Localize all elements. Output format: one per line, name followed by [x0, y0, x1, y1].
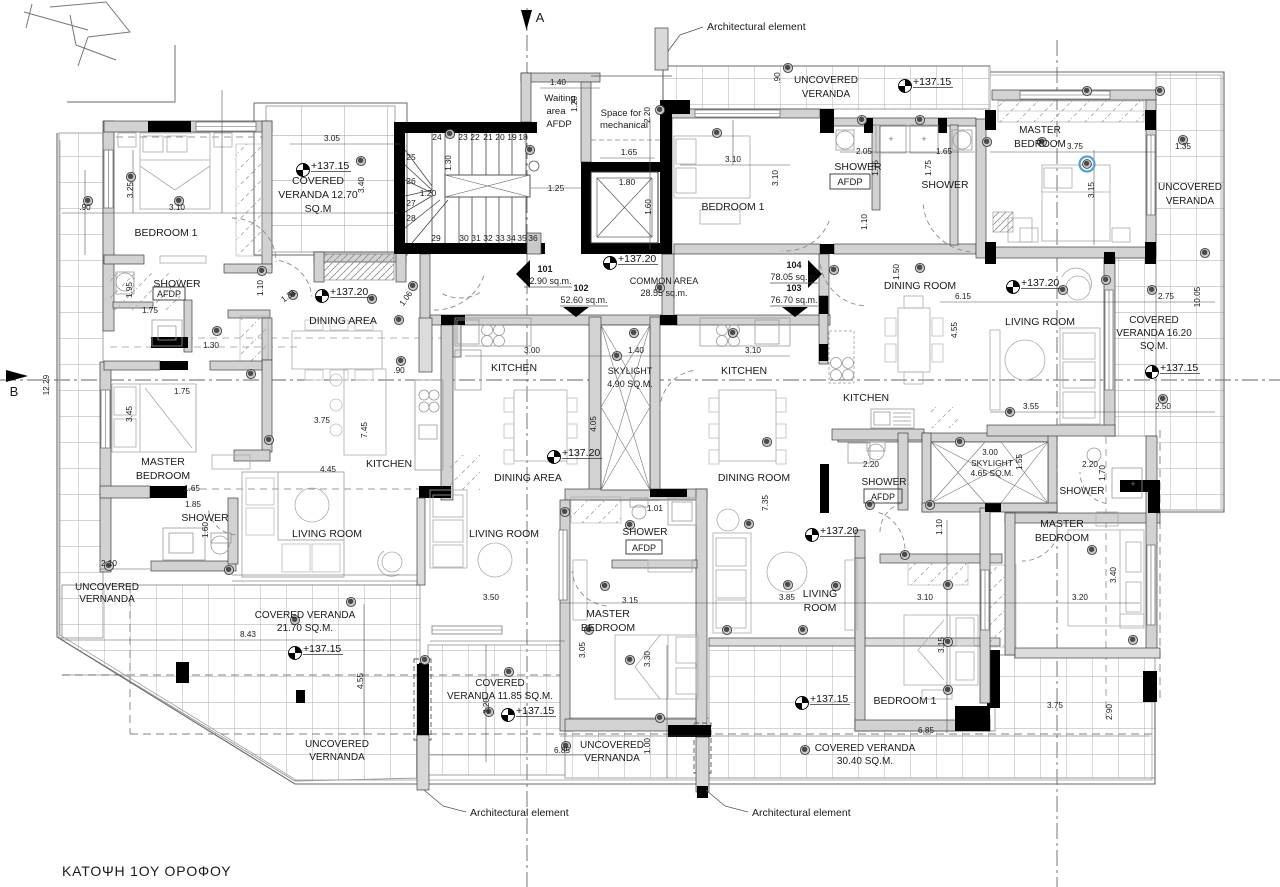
svg-text:12.29: 12.29 — [42, 374, 51, 395]
svg-text:1.40: 1.40 — [628, 346, 644, 355]
svg-text:1.10: 1.10 — [860, 214, 869, 230]
svg-text:4.55: 4.55 — [950, 322, 959, 338]
svg-text:Architectural element: Architectural element — [752, 807, 851, 819]
svg-text:MASTER: MASTER — [1019, 125, 1061, 136]
svg-text:UNCOVERED: UNCOVERED — [580, 740, 644, 751]
svg-text:2.20: 2.20 — [643, 107, 652, 123]
svg-text:1.75: 1.75 — [142, 306, 158, 315]
svg-text:3.45: 3.45 — [125, 406, 134, 422]
svg-text:32: 32 — [483, 233, 493, 243]
svg-text:.90: .90 — [79, 203, 91, 212]
svg-text:1.75: 1.75 — [174, 387, 190, 396]
svg-text:1.30: 1.30 — [203, 341, 219, 350]
svg-text:2.90: 2.90 — [1105, 704, 1114, 720]
svg-text:36: 36 — [528, 233, 538, 243]
svg-text:3.30: 3.30 — [643, 651, 652, 667]
svg-text:3.00: 3.00 — [524, 346, 540, 355]
svg-text:VERNANDA: VERNANDA — [584, 753, 640, 764]
svg-text:SHOWER: SHOWER — [1060, 486, 1105, 497]
svg-text:1.65: 1.65 — [936, 147, 952, 156]
svg-text:4.45: 4.45 — [320, 465, 336, 474]
svg-text:1.60: 1.60 — [644, 199, 653, 215]
svg-text:76.70 sq.m.: 76.70 sq.m. — [770, 295, 817, 305]
svg-text:.90: .90 — [393, 366, 405, 375]
svg-text:Architectural element: Architectural element — [707, 21, 806, 33]
svg-text:3.50: 3.50 — [483, 593, 499, 602]
svg-text:KITCHEN: KITCHEN — [491, 362, 537, 374]
svg-text:DINING AREA: DINING AREA — [309, 315, 377, 327]
svg-text:1.40: 1.40 — [550, 78, 566, 87]
svg-text:28.55 sq.m.: 28.55 sq.m. — [640, 288, 687, 298]
svg-text:2.10: 2.10 — [101, 559, 117, 568]
svg-text:UNCOVERED: UNCOVERED — [305, 739, 369, 750]
svg-text:3.15: 3.15 — [937, 637, 946, 653]
svg-text:78.05 sq.m.: 78.05 sq.m. — [770, 272, 817, 282]
svg-text:20: 20 — [495, 132, 505, 142]
svg-text:VERANDA 16.20: VERANDA 16.20 — [1116, 328, 1192, 339]
svg-text:+137.15: +137.15 — [303, 643, 341, 655]
svg-text:1.10: 1.10 — [935, 519, 944, 535]
svg-text:AFDP: AFDP — [632, 543, 656, 553]
svg-text:UNCOVERED: UNCOVERED — [794, 75, 858, 86]
svg-text:3.05: 3.05 — [578, 642, 587, 658]
svg-text:LIVING ROOM: LIVING ROOM — [292, 528, 362, 540]
svg-text:3.10: 3.10 — [169, 203, 185, 212]
svg-text:KITCHEN: KITCHEN — [843, 392, 889, 404]
svg-text:Space for: Space for — [601, 108, 642, 119]
svg-text:+137.20: +137.20 — [618, 253, 656, 265]
svg-text:VERANDA: VERANDA — [802, 89, 851, 100]
svg-text:SQ.M.: SQ.M. — [1140, 341, 1168, 352]
svg-text:33: 33 — [495, 233, 505, 243]
svg-text:6.85: 6.85 — [918, 726, 934, 735]
svg-text:MASTER: MASTER — [1040, 518, 1084, 530]
svg-text:7.35: 7.35 — [761, 495, 770, 511]
svg-text:2.75: 2.75 — [1158, 292, 1174, 301]
svg-text:3.10: 3.10 — [917, 593, 933, 602]
svg-text:1.80: 1.80 — [619, 177, 636, 187]
svg-text:4.05: 4.05 — [589, 416, 598, 432]
svg-text:2.20: 2.20 — [863, 460, 879, 469]
svg-text:3.75: 3.75 — [1047, 701, 1063, 710]
svg-text:ROOM: ROOM — [804, 602, 837, 614]
svg-text:1.70: 1.70 — [1098, 465, 1107, 481]
svg-text:1.30: 1.30 — [444, 155, 453, 171]
svg-text:29: 29 — [431, 233, 441, 243]
svg-text:LIVING ROOM: LIVING ROOM — [469, 528, 539, 540]
svg-text:1.60: 1.60 — [201, 522, 210, 538]
svg-text:COVERED: COVERED — [475, 678, 524, 689]
svg-text:3.20: 3.20 — [1072, 593, 1088, 602]
svg-text:52.60 sq.m.: 52.60 sq.m. — [560, 295, 607, 305]
svg-text:3.00: 3.00 — [982, 448, 998, 457]
svg-text:3.05: 3.05 — [324, 134, 340, 143]
svg-text:COMMON AREA: COMMON AREA — [630, 276, 699, 286]
svg-text:2.20: 2.20 — [1082, 460, 1098, 469]
svg-text:KITCHEN: KITCHEN — [366, 458, 412, 470]
svg-text:3.40: 3.40 — [357, 177, 366, 193]
svg-text:DINING ROOM: DINING ROOM — [718, 472, 790, 484]
svg-text:SHOWER: SHOWER — [921, 179, 969, 191]
svg-text:6.15: 6.15 — [955, 292, 971, 301]
svg-text:BEDROOM 1: BEDROOM 1 — [701, 201, 764, 213]
svg-text:8.43: 8.43 — [240, 630, 256, 639]
svg-text:+137.20: +137.20 — [330, 286, 368, 298]
svg-text:KITCHEN: KITCHEN — [721, 365, 767, 377]
svg-text:Architectural element: Architectural element — [470, 807, 569, 819]
svg-text:28: 28 — [406, 213, 416, 223]
svg-text:7.45: 7.45 — [360, 422, 369, 438]
svg-text:1.35: 1.35 — [1175, 142, 1191, 151]
svg-text:27: 27 — [406, 198, 416, 208]
svg-text:22: 22 — [470, 132, 480, 142]
svg-text:A: A — [536, 10, 545, 25]
svg-text:SQ.M: SQ.M — [305, 203, 332, 215]
svg-text:24: 24 — [432, 132, 442, 142]
svg-text:3.25: 3.25 — [126, 182, 135, 198]
svg-text:VERANDA 12.70: VERANDA 12.70 — [278, 189, 358, 201]
svg-text:BEDROOM 1: BEDROOM 1 — [134, 227, 197, 239]
svg-text:3.55: 3.55 — [1023, 402, 1039, 411]
svg-text:ΚΑΤΟΨΗ 1ΟΥ ΟΡΟΦΟΥ: ΚΑΤΟΨΗ 1ΟΥ ΟΡΟΦΟΥ — [62, 863, 231, 879]
svg-text:1.50: 1.50 — [892, 264, 901, 280]
svg-text:+137.15: +137.15 — [311, 160, 349, 172]
svg-text:4.65 SQ.M.: 4.65 SQ.M. — [971, 468, 1014, 478]
svg-text:31: 31 — [471, 233, 481, 243]
svg-text:+137.15: +137.15 — [516, 705, 554, 717]
svg-text:BEDROOM: BEDROOM — [136, 470, 190, 482]
svg-text:BEDROOM: BEDROOM — [1035, 532, 1089, 544]
svg-text:1.65: 1.65 — [621, 147, 638, 157]
svg-text:2.05: 2.05 — [856, 147, 872, 156]
svg-text:35: 35 — [517, 233, 527, 243]
svg-text:+: + — [1130, 479, 1135, 489]
svg-text:1.00: 1.00 — [643, 738, 652, 754]
svg-text:26: 26 — [406, 176, 416, 186]
svg-text:AFDP: AFDP — [157, 289, 181, 299]
svg-text:COVERED VERANDA: COVERED VERANDA — [255, 610, 356, 621]
svg-text:1.65: 1.65 — [184, 484, 200, 493]
svg-text:VERANDA: VERANDA — [1166, 196, 1215, 207]
svg-text:30.40 SQ.M.: 30.40 SQ.M. — [837, 756, 893, 767]
svg-text:1.20: 1.20 — [570, 96, 579, 112]
svg-text:6.85: 6.85 — [554, 746, 570, 755]
svg-text:area: area — [546, 106, 566, 117]
svg-text:+: + — [921, 134, 926, 144]
svg-text:1.85: 1.85 — [185, 500, 201, 509]
svg-text:4.55: 4.55 — [356, 673, 365, 689]
svg-text:+: + — [888, 134, 893, 144]
svg-text:MASTER: MASTER — [586, 608, 630, 620]
svg-text:3.40: 3.40 — [1109, 567, 1118, 583]
svg-text:1.01: 1.01 — [647, 504, 663, 513]
svg-text:SKYLIGHT: SKYLIGHT — [971, 458, 1013, 468]
svg-text:1.10: 1.10 — [256, 280, 265, 296]
svg-text:SHOWER: SHOWER — [623, 527, 668, 538]
svg-text:VERNANDA: VERNANDA — [79, 594, 135, 605]
svg-text:1.75: 1.75 — [871, 160, 880, 176]
svg-text:3.20: 3.20 — [482, 698, 491, 714]
svg-text:1.55: 1.55 — [1015, 454, 1024, 470]
svg-text:COVERED VERANDA: COVERED VERANDA — [815, 743, 916, 754]
svg-text:102: 102 — [573, 283, 588, 293]
svg-text:BEDROOM 1: BEDROOM 1 — [873, 695, 936, 707]
svg-text:BEDROOM: BEDROOM — [1014, 139, 1066, 150]
svg-text:1.75: 1.75 — [924, 160, 933, 176]
svg-text:3.15: 3.15 — [622, 596, 638, 605]
svg-text:UNCOVERED: UNCOVERED — [1158, 182, 1222, 193]
svg-text:3.10: 3.10 — [725, 155, 741, 164]
svg-text:LIVING ROOM: LIVING ROOM — [1005, 316, 1075, 328]
svg-text:+137.20: +137.20 — [562, 447, 600, 459]
svg-text:MASTER: MASTER — [141, 456, 185, 468]
svg-text:mechanical: mechanical — [600, 120, 648, 131]
svg-text:COVERED: COVERED — [1129, 315, 1178, 326]
svg-text:3.75: 3.75 — [314, 416, 330, 425]
svg-text:DINING ROOM: DINING ROOM — [884, 280, 956, 292]
svg-text:3.75: 3.75 — [1067, 142, 1083, 151]
svg-text:21: 21 — [483, 132, 493, 142]
svg-text:SKYLIGHT: SKYLIGHT — [608, 366, 653, 376]
svg-text:1.20: 1.20 — [420, 188, 437, 198]
svg-text:2.50: 2.50 — [1155, 402, 1171, 411]
svg-text:18: 18 — [518, 132, 528, 142]
svg-text:103: 103 — [786, 283, 801, 293]
svg-text:21.70 SQ.M.: 21.70 SQ.M. — [277, 623, 333, 634]
svg-text:30: 30 — [459, 233, 469, 243]
svg-text:19: 19 — [507, 132, 517, 142]
svg-text:BEDROOM: BEDROOM — [581, 622, 635, 634]
svg-text:82.90 sq.m.: 82.90 sq.m. — [524, 276, 571, 286]
svg-text:3.15: 3.15 — [1087, 182, 1096, 198]
svg-text:VERNANDA: VERNANDA — [309, 752, 365, 763]
svg-text:+137.15: +137.15 — [810, 693, 848, 705]
svg-text:+137.20: +137.20 — [820, 525, 858, 537]
svg-text:SHOWER: SHOWER — [862, 477, 907, 488]
svg-text:3.10: 3.10 — [771, 170, 780, 186]
svg-text:23: 23 — [458, 132, 468, 142]
svg-text:4.90 SQ.M.: 4.90 SQ.M. — [607, 379, 653, 389]
svg-text:UNCOVERED: UNCOVERED — [75, 582, 139, 593]
svg-text:101: 101 — [537, 264, 552, 274]
svg-text:AFDP: AFDP — [871, 492, 895, 502]
svg-text:1.95: 1.95 — [125, 282, 134, 298]
svg-text:COVERED: COVERED — [292, 175, 344, 187]
svg-text:3.85: 3.85 — [779, 593, 795, 602]
svg-text:+137.20: +137.20 — [1021, 277, 1059, 289]
svg-text:B: B — [10, 384, 19, 399]
svg-text:LIVING: LIVING — [803, 588, 837, 600]
svg-text:34: 34 — [506, 233, 516, 243]
svg-text:AFDP: AFDP — [837, 177, 862, 188]
svg-text:+137.15: +137.15 — [913, 76, 951, 88]
svg-text:104: 104 — [786, 260, 801, 270]
svg-text:.90: .90 — [773, 72, 782, 84]
svg-text:25: 25 — [406, 152, 416, 162]
svg-text:3.10: 3.10 — [745, 346, 761, 355]
svg-text:10.05: 10.05 — [1193, 286, 1202, 307]
svg-text:AFDP: AFDP — [546, 119, 571, 130]
svg-text:DINING AREA: DINING AREA — [494, 472, 562, 484]
svg-text:VERANDA 11.85 SQ.M.: VERANDA 11.85 SQ.M. — [447, 691, 553, 702]
svg-text:+137.15: +137.15 — [1160, 362, 1198, 374]
